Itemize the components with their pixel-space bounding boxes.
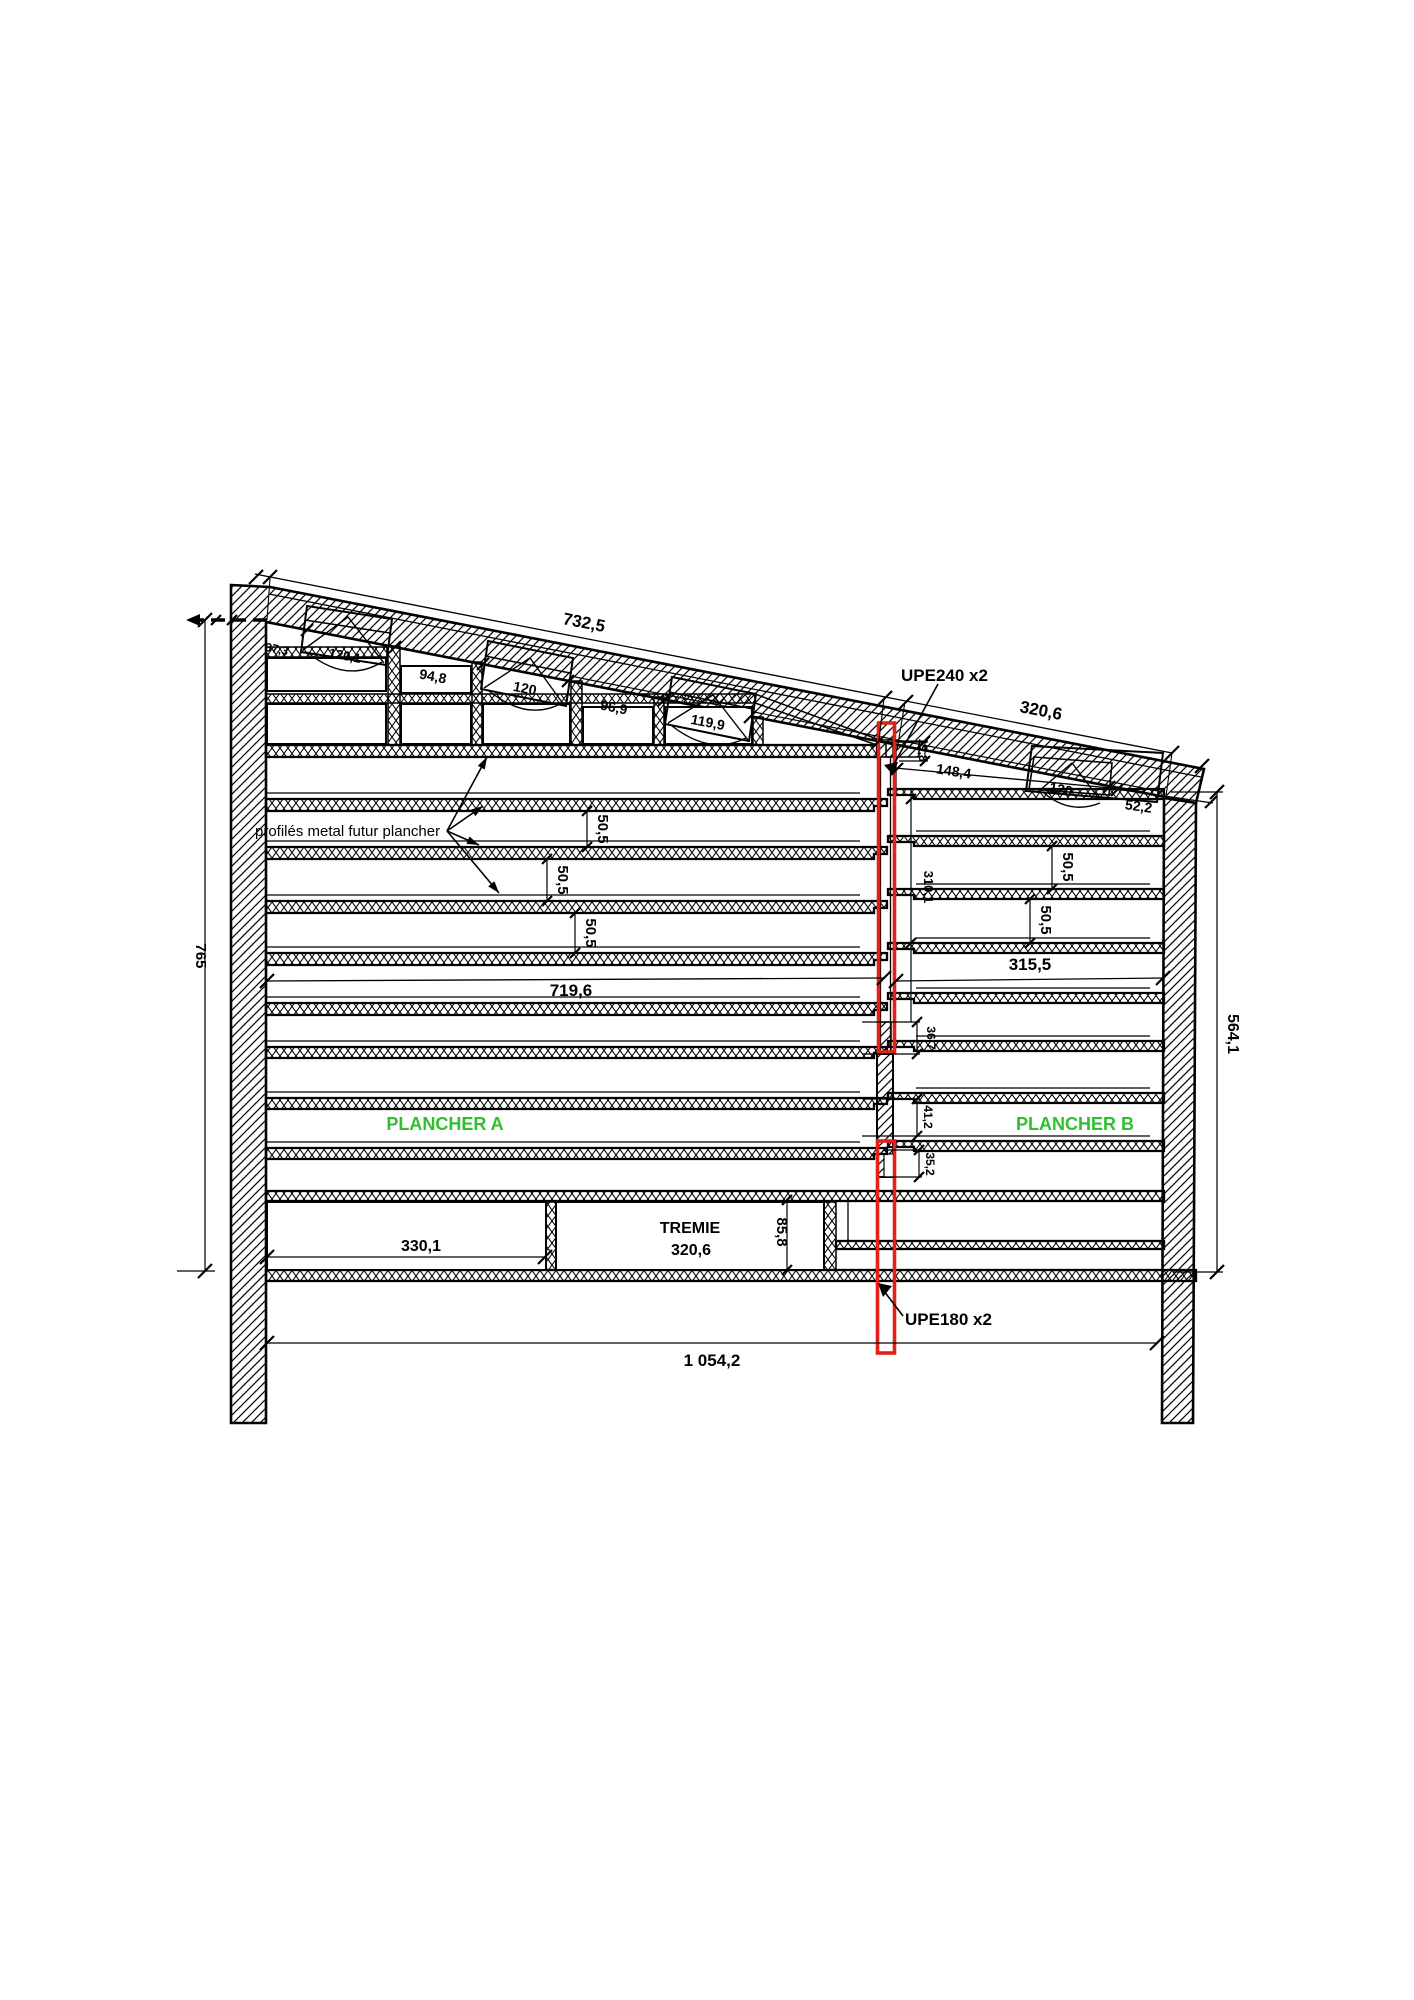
svg-text:50,5: 50,5 <box>594 814 611 843</box>
svg-text:564,1: 564,1 <box>1224 1014 1241 1054</box>
svg-text:719,6: 719,6 <box>550 981 593 1000</box>
svg-text:310,1: 310,1 <box>921 871 936 904</box>
svg-text:PLANCHER B: PLANCHER B <box>1016 1114 1134 1134</box>
svg-text:PLANCHER A: PLANCHER A <box>386 1114 503 1134</box>
svg-text:330,1: 330,1 <box>401 1238 441 1255</box>
svg-text:UPE180 x2: UPE180 x2 <box>905 1310 992 1329</box>
svg-text:320,6: 320,6 <box>671 1242 711 1259</box>
svg-text:85,8: 85,8 <box>773 1217 790 1246</box>
svg-text:1 054,2: 1 054,2 <box>684 1351 741 1370</box>
svg-text:50,5: 50,5 <box>582 918 599 947</box>
svg-text:profilés metal futur plancher: profilés metal futur plancher <box>255 823 440 840</box>
svg-text:765: 765 <box>192 943 209 968</box>
svg-text:36,7: 36,7 <box>924 1026 938 1050</box>
svg-text:41,2: 41,2 <box>921 1105 935 1129</box>
svg-text:19,8: 19,8 <box>916 738 930 762</box>
svg-text:50,5: 50,5 <box>1059 852 1076 881</box>
svg-text:50,5: 50,5 <box>1037 905 1054 934</box>
svg-text:35,2: 35,2 <box>923 1152 937 1176</box>
svg-text:UPE240 x2: UPE240 x2 <box>901 666 988 685</box>
svg-text:315,5: 315,5 <box>1009 955 1052 974</box>
svg-text:TREMIE: TREMIE <box>660 1220 721 1237</box>
svg-text:50,5: 50,5 <box>554 865 571 894</box>
